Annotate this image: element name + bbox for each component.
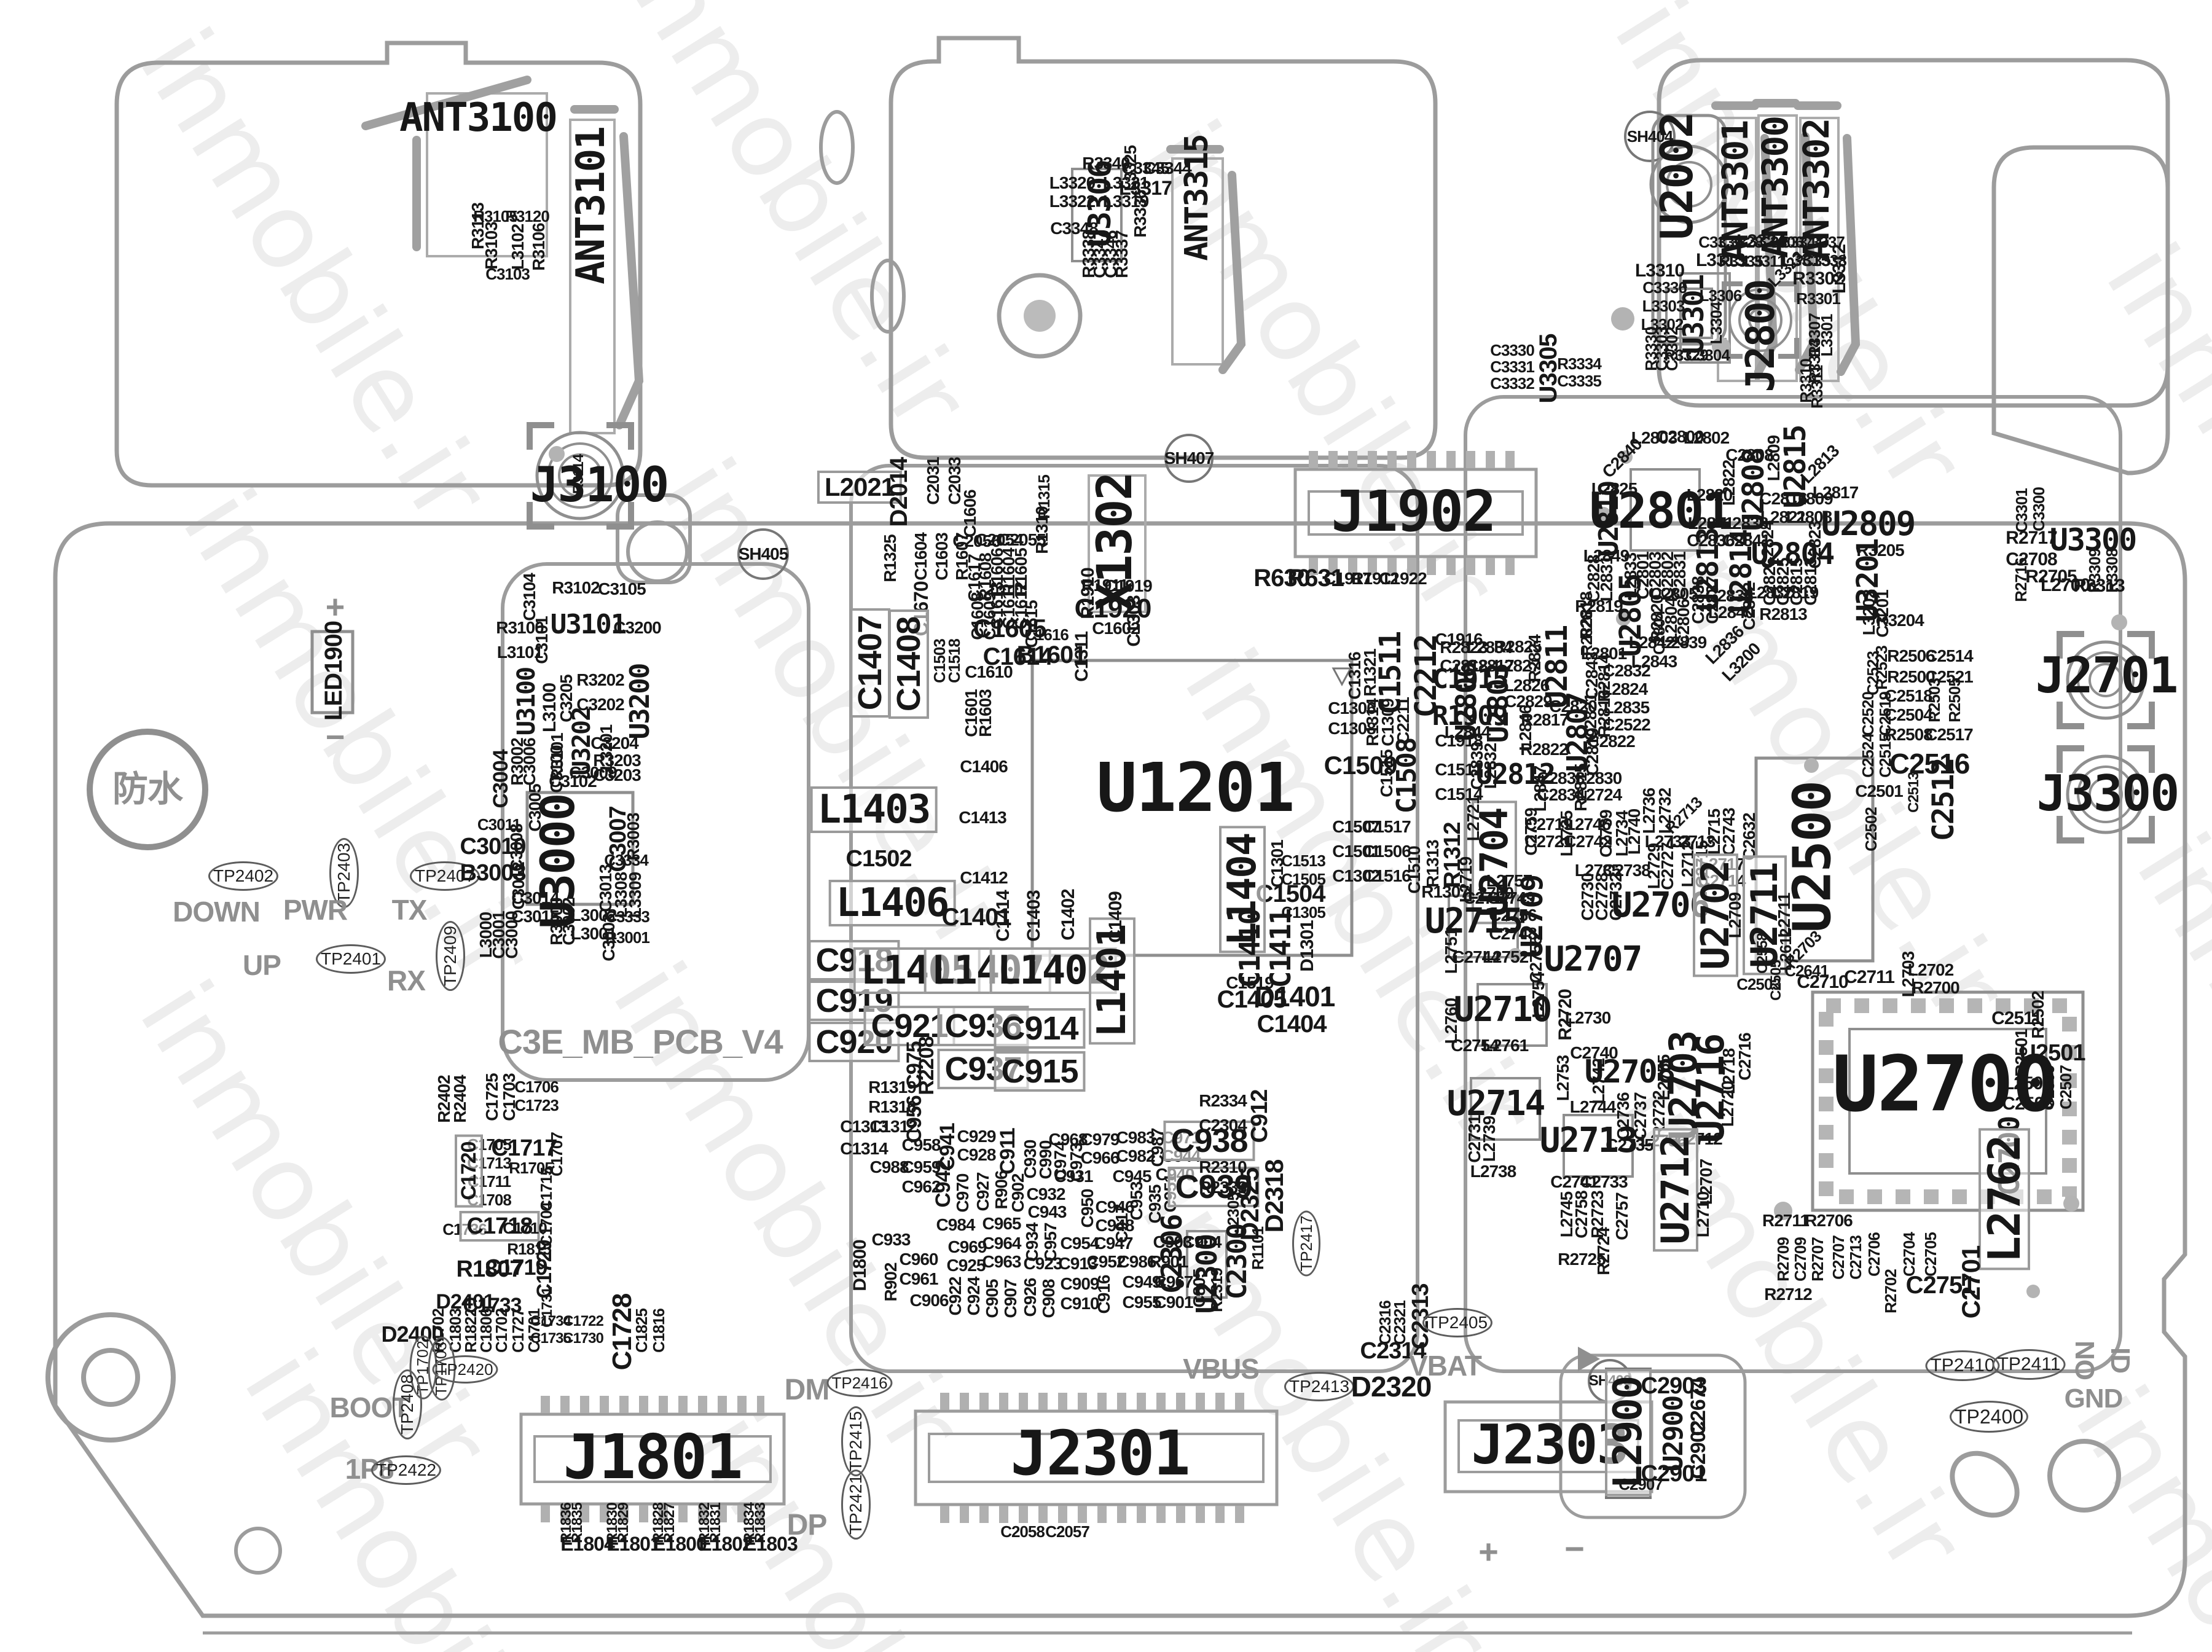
component-label: C1516 [1363, 867, 1411, 885]
component-label: C3000 [503, 911, 520, 959]
component-label: C3333 [605, 909, 649, 925]
component-label: C1816 [651, 1309, 667, 1353]
component-label: NO [2071, 1341, 2098, 1380]
component-label: C929 [957, 1128, 996, 1145]
component-label: L2753 [1555, 1055, 1572, 1101]
component-label: C2306 [1158, 1215, 1186, 1294]
component-label: L2752 [1483, 949, 1528, 966]
component-label: − [326, 721, 345, 754]
testpoint-label: TP2415 [841, 1406, 871, 1476]
component-label: L2750 [1468, 885, 1513, 902]
component-label: C902 [1010, 1174, 1027, 1213]
component-label: C916 [1096, 1275, 1113, 1314]
component-label: C928 [957, 1146, 996, 1164]
component-label: C1414 [994, 890, 1013, 941]
component-label: C2743 [1720, 808, 1738, 856]
component-label: C1316 [1346, 652, 1363, 700]
component-label: U3200 [627, 664, 654, 739]
component-label: L2754 [1530, 973, 1547, 1018]
component-label: L2824 [1602, 681, 1647, 698]
component-label: U2805 [1616, 574, 1645, 657]
component-label: R2706 [1805, 1212, 1853, 1229]
component-label: C914 [994, 1008, 1085, 1049]
component-label: C3105 [598, 581, 646, 598]
component-label: U2712 [1653, 1129, 1698, 1252]
component-label: R2725 [1558, 1251, 1606, 1268]
component-label: C922 [947, 1277, 964, 1316]
component-label: R1319 [868, 1079, 916, 1096]
component-label: C3104 [521, 573, 538, 621]
testpoint-label: TP2417 [1292, 1210, 1320, 1276]
testpoint-label: TP2421 [841, 1470, 871, 1540]
component-label: C2632 [1741, 813, 1758, 861]
component-label: C964 [982, 1235, 1021, 1252]
component-label: L2762 [1979, 1129, 2030, 1270]
component-label: L2734 [1614, 811, 1631, 856]
component-label: R3334 [1557, 356, 1601, 372]
component-label: C2507 [2058, 1065, 2074, 1110]
component-label: C1403 [1025, 890, 1043, 941]
component-label: C2707 [1830, 1235, 1846, 1280]
component-label: C2711 [1844, 968, 1894, 987]
component-label: C1512 [1435, 761, 1483, 778]
component-label: C1506 [1363, 843, 1411, 860]
component-label: R3202 [576, 671, 624, 689]
component-label: R1315 [1036, 475, 1052, 519]
component-label: U2809 [1821, 507, 1915, 541]
testpoint-label: TP2411 [1993, 1349, 2066, 1380]
component-label: C2759 [1523, 808, 1540, 856]
component-label: C3332 [1490, 375, 1534, 391]
component-label: ANT3101 [571, 127, 611, 284]
component-label: C909 [1061, 1275, 1099, 1293]
component-label: C2304 [1199, 1117, 1247, 1134]
component-label: R2709 [1775, 1237, 1791, 1282]
component-label: C927 [975, 1173, 992, 1212]
component-label: R1603 [977, 689, 994, 737]
component-label: C923 [1024, 1255, 1062, 1272]
component-label: R2707 [1810, 1237, 1826, 1282]
component-label: U2807 [1563, 693, 1591, 772]
component-label: C1402 [1059, 889, 1078, 940]
component-label: C3E_MB_PCB_V4 [498, 1025, 782, 1059]
component-label: C908 [1040, 1280, 1057, 1318]
component-label: R2505 [1947, 678, 1963, 722]
component-label: J2800 [1741, 280, 1781, 393]
component-label: R902 [882, 1263, 900, 1302]
component-label: C1518 [946, 639, 962, 683]
testpoint-label: TP2405 [1422, 1308, 1492, 1337]
component-label: R2702 [1883, 1269, 1899, 1313]
testpoint-label: TP2408 [393, 1369, 422, 1439]
component-label: L3306 [1700, 288, 1742, 303]
component-label: C915 [994, 1051, 1085, 1092]
component-label: R3103 [483, 222, 500, 270]
component-label: C1702 [493, 1309, 509, 1353]
component-label: C1407 [850, 608, 890, 718]
component-label: C1825 [633, 1309, 649, 1353]
component-label: J1902 [1332, 483, 1496, 540]
component-label: C2710 [1797, 973, 1848, 992]
component-label: R1321 [1362, 649, 1379, 697]
component-label: C2057 [1045, 1524, 1089, 1540]
component-label: R2700 [1912, 979, 1959, 996]
component-label: R3102 [552, 579, 600, 597]
component-label: R2712 [1764, 1286, 1812, 1303]
component-label: C1918 [1435, 732, 1483, 750]
component-label: D2014 [887, 458, 911, 527]
component-label: R1313 [1424, 840, 1441, 888]
component-label: C933 [872, 1231, 911, 1248]
component-label: R2826 [1579, 612, 1594, 656]
component-label: L2724 [1576, 786, 1622, 804]
component-label: C931 [1054, 1168, 1093, 1185]
component-label: C925 [947, 1257, 986, 1274]
component-label: C3334 [604, 852, 648, 868]
component-label: R1307 [1421, 883, 1469, 901]
component-label: C2907 [1618, 1476, 1663, 1492]
component-label: C1508 [1394, 738, 1421, 813]
component-label: R3204 [1876, 612, 1924, 629]
component-label: VBAT [1409, 1352, 1481, 1380]
component-label: U2707 [1544, 942, 1642, 977]
component-label: + [326, 590, 345, 624]
component-label: C2520 [1860, 692, 1876, 736]
component-label: C1730 [563, 1331, 603, 1346]
component-label: D1301 [1298, 920, 1317, 971]
component-label: C1408 [888, 609, 929, 719]
component-label: C3101 [533, 616, 551, 664]
component-label: ANT3100 [399, 98, 557, 138]
component-label: R2208 [916, 1036, 937, 1095]
component-label: R3336 [1132, 190, 1149, 238]
component-label: L2738 [1470, 1163, 1516, 1180]
component-label: C1723 [514, 1097, 559, 1113]
component-label: J2701 [2036, 651, 2178, 700]
testpoint-label: TP2409 [436, 921, 465, 991]
component-label: C2706 [1866, 1232, 1882, 1277]
component-label: C1610 [965, 664, 1013, 681]
component-label: L2702 [1908, 961, 1953, 979]
component-label: TX [392, 896, 427, 924]
component-label: L3304 [1708, 302, 1724, 345]
component-label: U2501 [2020, 1041, 2085, 1065]
component-label: U2002 [1655, 113, 1699, 240]
component-label: C1409 [1107, 891, 1125, 942]
component-label: C1706 [514, 1079, 559, 1095]
component-label-layer: ANT3100ANT3101R3113R3105R3120R3103L3102R… [0, 0, 2212, 1652]
component-label: C901 [1155, 1294, 1193, 1311]
component-label: C969 [948, 1239, 987, 1256]
component-label: C3006 [521, 738, 538, 786]
component-label: C1413 [959, 809, 1006, 826]
component-label: C960 [900, 1251, 938, 1268]
component-label: R3001 [605, 930, 649, 945]
component-label: J1801 [563, 1427, 742, 1488]
component-label: R3313 [2073, 577, 2124, 595]
component-label: C3300 [2031, 487, 2047, 531]
component-label: C2503 [1736, 976, 1781, 992]
component-label: L2831 [1598, 556, 1615, 601]
component-label: C3330 [1490, 342, 1534, 358]
component-label: C1303 [1125, 595, 1143, 646]
component-label: C3100 [548, 745, 565, 793]
component-label: C1412 [960, 869, 1008, 887]
component-label: C2512 [1929, 759, 1958, 842]
pcb-layout-diagram: inmobile.irinmobile.irinmobile.irinmobil… [0, 0, 2212, 1652]
component-label: C2902 [1688, 1420, 1709, 1479]
component-label: C2211 [1395, 697, 1412, 744]
component-label: UP [243, 951, 281, 979]
component-label: C961 [900, 1270, 938, 1288]
component-label: C958 [902, 1137, 941, 1154]
component-label: E1803 [743, 1534, 798, 1554]
testpoint-label: TP2416 [826, 1369, 892, 1397]
component-label: DOWN [173, 898, 260, 926]
component-label: R3106 [530, 223, 547, 271]
component-label: C3200 [613, 619, 661, 636]
component-label: L3102 [509, 224, 527, 270]
component-label: C2519 [1877, 692, 1893, 736]
component-label: C947 [1094, 1235, 1133, 1252]
component-label: C932 [1027, 1186, 1065, 1203]
testpoint-label: TP2400 [1950, 1401, 2028, 1433]
component-label: R1325 [882, 534, 899, 582]
component-label: C3335 [1557, 373, 1601, 389]
component-label: L2710 [1695, 1192, 1712, 1237]
component-label: C942 [933, 1160, 954, 1207]
component-label: C966 [1081, 1149, 1120, 1167]
component-label: GND [2065, 1385, 2123, 1412]
component-label: L2835 [1604, 699, 1649, 716]
component-label: L1406 [829, 880, 956, 926]
component-label: C1406 [960, 758, 1008, 775]
component-label: ID [2106, 1347, 2133, 1373]
component-label: U2500 [1787, 781, 1839, 933]
component-label: R3302 [1792, 270, 1843, 288]
component-label: C1915 [1432, 666, 1507, 693]
component-label: C3203 [593, 767, 641, 784]
component-label: L1403 [810, 786, 938, 833]
component-label: L2820 [1687, 487, 1732, 504]
component-label: C1517 [1363, 818, 1411, 836]
component-label: C965 [982, 1215, 1021, 1232]
component-label: C905 [984, 1280, 1001, 1318]
component-label: C3204 [590, 735, 638, 752]
component-label: L2761 [1483, 1037, 1528, 1054]
component-label: R1101 [1250, 1227, 1266, 1270]
testpoint-label: TP2402 [208, 861, 278, 891]
component-label: C970 [954, 1174, 971, 1213]
component-label: C2031 [925, 457, 942, 505]
component-label: C963 [982, 1253, 1021, 1270]
shield-label: SH407 [1164, 450, 1214, 467]
component-label: J2301 [1010, 1423, 1189, 1484]
component-label: C1919 [1104, 577, 1152, 595]
component-label: C2502 [1863, 807, 1879, 851]
component-label: L2817 [1813, 484, 1858, 501]
component-label: C2522 [1602, 716, 1650, 734]
component-label: ANT3315 [1181, 135, 1213, 260]
component-label: C1604 [912, 533, 930, 581]
component-label: U2713 [1540, 1124, 1637, 1158]
component-label: J3100 [530, 461, 669, 509]
component-label: R1909 [1432, 703, 1507, 730]
component-label: PWR [283, 896, 347, 924]
component-label: C2709 [1792, 1237, 1808, 1282]
component-label: C3103 [485, 266, 530, 282]
component-label: R2334 [1199, 1092, 1247, 1110]
testpoint-label: TP2401 [316, 944, 386, 974]
component-label: C3010 [460, 835, 526, 858]
component-label: C3304 [1685, 347, 1730, 363]
component-label: C2513 [1907, 772, 1921, 813]
component-label: U3100 [514, 668, 539, 735]
component-label: C1727 [510, 1309, 526, 1353]
component-label: C2058 [1000, 1524, 1045, 1540]
component-label: L2819 [1773, 584, 1818, 601]
component-label: C926 [1022, 1278, 1039, 1317]
component-label: R3120 [505, 208, 549, 224]
component-label: C2517 [1925, 726, 1973, 743]
component-label: C1314 [840, 1140, 888, 1157]
component-label: C3301 [2014, 488, 2030, 533]
component-label: C1514 [1435, 786, 1483, 803]
component-label: D2318 [1261, 1160, 1287, 1233]
component-label: C1922 [1379, 570, 1427, 587]
component-label: C2701 [1958, 1246, 1984, 1319]
component-label: C2704 [1901, 1232, 1917, 1277]
component-label: C2524 [1860, 734, 1876, 778]
component-label: C1603 [933, 533, 951, 581]
component-label: C943 [1028, 1204, 1067, 1221]
component-label: C1504 [1256, 882, 1325, 906]
component-label: R2711 [1762, 1212, 1809, 1229]
component-label: C910 [1061, 1295, 1099, 1312]
component-label: U2900 [1660, 1396, 1687, 1471]
component-label: C2515 [1877, 734, 1893, 778]
testpoint-label: TP2420 [432, 1355, 498, 1384]
component-label: D1800 [851, 1240, 869, 1291]
component-label: J3300 [2037, 769, 2179, 818]
component-label: L2739 [1481, 1116, 1498, 1162]
component-label: C1404 [1257, 1012, 1327, 1036]
component-label: C1722 [563, 1314, 603, 1329]
component-label: C2713 [1848, 1235, 1864, 1280]
component-label: RX [387, 966, 425, 995]
component-label: C979 [1081, 1131, 1120, 1148]
component-label: C2840 [1599, 436, 1645, 482]
component-label: C924 [965, 1277, 982, 1316]
component-label: R3311 [1809, 366, 1825, 409]
component-label: − [1564, 1532, 1584, 1566]
component-label: L2720 [1719, 1081, 1736, 1127]
testpoint-label: TP2413 [1284, 1372, 1354, 1401]
component-label: C907 [1002, 1280, 1019, 1318]
component-label: R2523 [1873, 646, 1889, 690]
component-label: C2508 [2002, 1095, 2053, 1113]
component-label: R906 [993, 1171, 1010, 1210]
testpoint-label: TP2422 [371, 1455, 441, 1485]
shield-label: SH405 [739, 546, 788, 563]
component-label: R3337 [1113, 230, 1131, 278]
component-label: C1311 [1073, 632, 1091, 682]
component-label: L2709 [1727, 893, 1744, 938]
component-label: C2514 [1925, 648, 1973, 665]
component-label: C2716 [1736, 1033, 1754, 1081]
component-label: C2501 [1855, 783, 1903, 800]
component-label: C1510 [1406, 846, 1423, 894]
component-label: C1725 [484, 1073, 501, 1121]
component-label: R2813 [1759, 606, 1807, 623]
component-label: R2502 [2030, 991, 2047, 1039]
component-label: C954 [1061, 1235, 1099, 1252]
component-label: C1616 [1024, 627, 1069, 643]
component-label: C1720 [455, 1134, 483, 1207]
component-label: R3301 [1796, 291, 1840, 307]
component-label: 防水 [112, 772, 182, 807]
component-label: L2730 [1565, 1009, 1610, 1027]
component-label: C2757 [1614, 1192, 1631, 1240]
component-label: C984 [936, 1216, 975, 1234]
component-label: + [1478, 1535, 1498, 1569]
component-label: C3331 [1490, 359, 1534, 375]
component-label: C2300 [1224, 1224, 1251, 1299]
component-label: C2705 [1923, 1232, 1939, 1277]
component-label: VBUS [1183, 1355, 1259, 1383]
component-label: C912 [1248, 1090, 1271, 1143]
component-label: L2802 [1684, 429, 1729, 447]
component-label: D1401 [1255, 982, 1335, 1011]
component-label: DM [785, 1376, 829, 1405]
component-label: U2715 [1425, 904, 1523, 939]
component-label: C906 [910, 1292, 949, 1309]
component-label: C2733 [1580, 1173, 1628, 1191]
component-label: LED1900 [321, 621, 346, 721]
component-label: R2404 [452, 1075, 469, 1123]
testpoint-label: TP2410 [1925, 1350, 1999, 1381]
component-label: C950 [1079, 1189, 1096, 1228]
component-label: C911 [997, 1128, 1018, 1174]
component-label: C1502 [846, 847, 912, 871]
component-label: R3114 [571, 455, 586, 494]
component-label: L2744 [1570, 1098, 1615, 1116]
component-label: U1201 [1096, 754, 1293, 821]
component-label: C1513 [1281, 853, 1325, 869]
component-label: U2300 [1193, 1235, 1221, 1313]
component-label: R1312 [1441, 823, 1464, 888]
component-label: C2727 [1659, 842, 1676, 890]
